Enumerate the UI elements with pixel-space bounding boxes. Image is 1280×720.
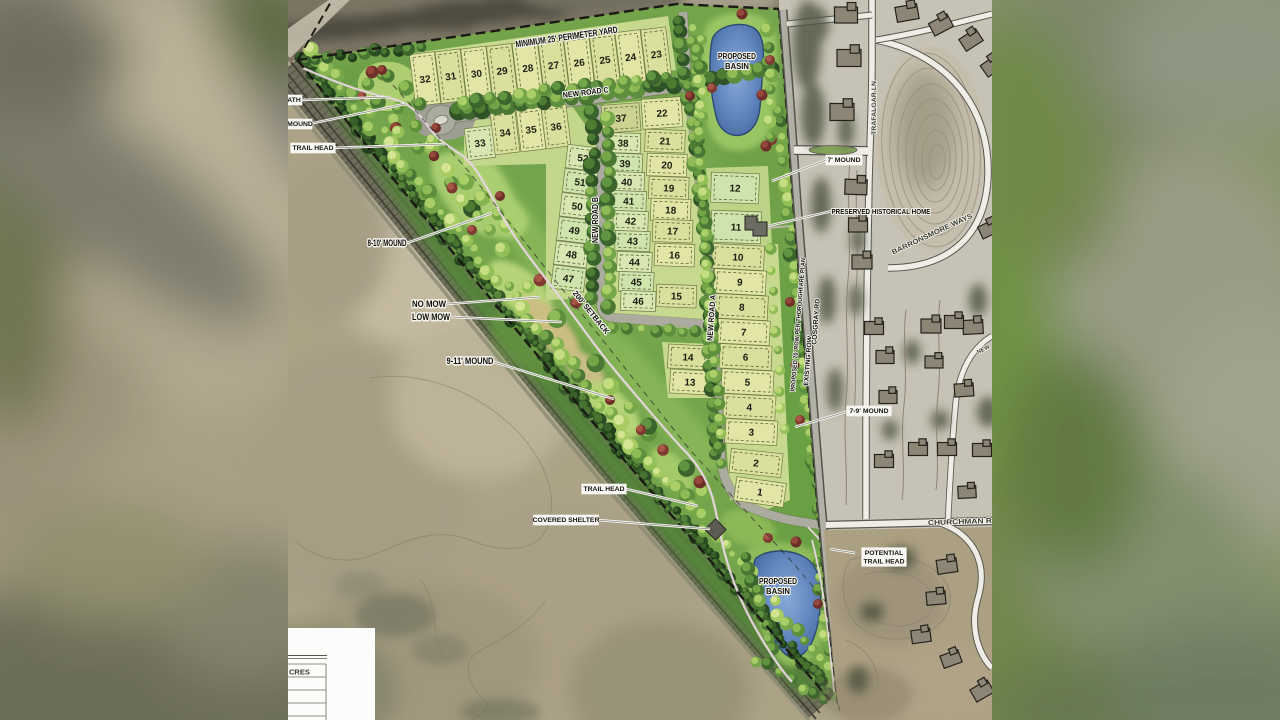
svg-text:35: 35 [525,124,538,136]
svg-text:7-9' MOUND: 7-9' MOUND [849,408,888,415]
svg-text:17: 17 [667,226,679,237]
svg-text:47: 47 [562,273,575,285]
svg-text:31: 31 [445,71,458,83]
svg-text:24: 24 [625,52,638,64]
svg-text:TRAIL HEAD: TRAIL HEAD [863,559,904,566]
svg-text:25: 25 [599,55,612,67]
svg-text:32: 32 [419,74,432,86]
svg-text:30: 30 [470,68,483,80]
svg-text:MOUND: MOUND [287,121,313,128]
svg-text:38: 38 [617,138,629,149]
svg-text:NEW ROAD B: NEW ROAD B [591,197,600,243]
svg-text:22: 22 [656,108,668,120]
svg-text:NO MOW: NO MOW [412,299,446,309]
svg-text:46: 46 [632,296,644,307]
svg-text:TRAIL HEAD: TRAIL HEAD [292,145,333,152]
svg-text:37: 37 [615,113,627,125]
svg-text:40: 40 [621,177,633,188]
svg-text:4: 4 [746,402,753,413]
svg-text:44: 44 [629,257,641,268]
svg-text:39: 39 [619,159,631,170]
svg-text:41: 41 [623,196,635,207]
svg-text:49: 49 [568,225,581,237]
svg-text:43: 43 [627,236,639,247]
svg-text:ATH: ATH [287,97,301,104]
svg-text:15: 15 [671,291,683,302]
svg-text:34: 34 [499,127,512,139]
svg-text:9-11' MOUND: 9-11' MOUND [447,356,494,366]
svg-text:42: 42 [625,216,637,227]
svg-text:18: 18 [665,205,677,216]
svg-text:48: 48 [565,249,578,261]
svg-text:PRESERVED HISTORICAL HOME: PRESERVED HISTORICAL HOME [832,207,931,216]
svg-text:50: 50 [571,201,584,213]
svg-text:23: 23 [650,49,663,61]
svg-text:COVERED SHELTER: COVERED SHELTER [533,517,600,524]
svg-text:33: 33 [474,138,487,150]
svg-text:3: 3 [748,427,755,438]
svg-text:20: 20 [661,160,673,171]
svg-text:5: 5 [744,377,751,388]
svg-text:TRAIL HEAD: TRAIL HEAD [583,486,624,493]
svg-text:PROPOSED: PROPOSED [759,577,797,586]
svg-text:29: 29 [496,66,509,78]
svg-text:12: 12 [729,183,741,194]
svg-text:27: 27 [547,60,560,72]
svg-text:21: 21 [659,136,671,147]
svg-text:26: 26 [573,57,586,69]
svg-text:7' MOUND: 7' MOUND [828,157,861,164]
svg-text:PROPOSED: PROPOSED [718,52,756,61]
svg-text:10: 10 [732,252,744,264]
svg-text:9: 9 [737,277,744,288]
svg-text:45: 45 [631,277,643,288]
svg-text:LOW MOW: LOW MOW [412,312,450,322]
svg-text:8: 8 [739,302,746,313]
svg-text:CRES: CRES [289,668,310,677]
svg-text:8-10' MOUND: 8-10' MOUND [368,238,407,248]
svg-text:16: 16 [669,250,681,261]
svg-text:36: 36 [550,121,563,133]
svg-text:BASIN: BASIN [766,587,790,596]
svg-text:6: 6 [742,352,749,363]
svg-text:13: 13 [684,377,696,389]
svg-text:28: 28 [522,63,535,75]
svg-text:POTENTIAL: POTENTIAL [865,550,904,557]
svg-text:19: 19 [663,183,675,194]
svg-text:BASIN: BASIN [725,62,749,71]
svg-text:11: 11 [730,222,741,233]
svg-text:51: 51 [574,177,587,189]
svg-text:14: 14 [682,352,694,364]
svg-text:TRAFALGAR LN: TRAFALGAR LN [871,81,878,135]
svg-text:7: 7 [741,327,748,338]
